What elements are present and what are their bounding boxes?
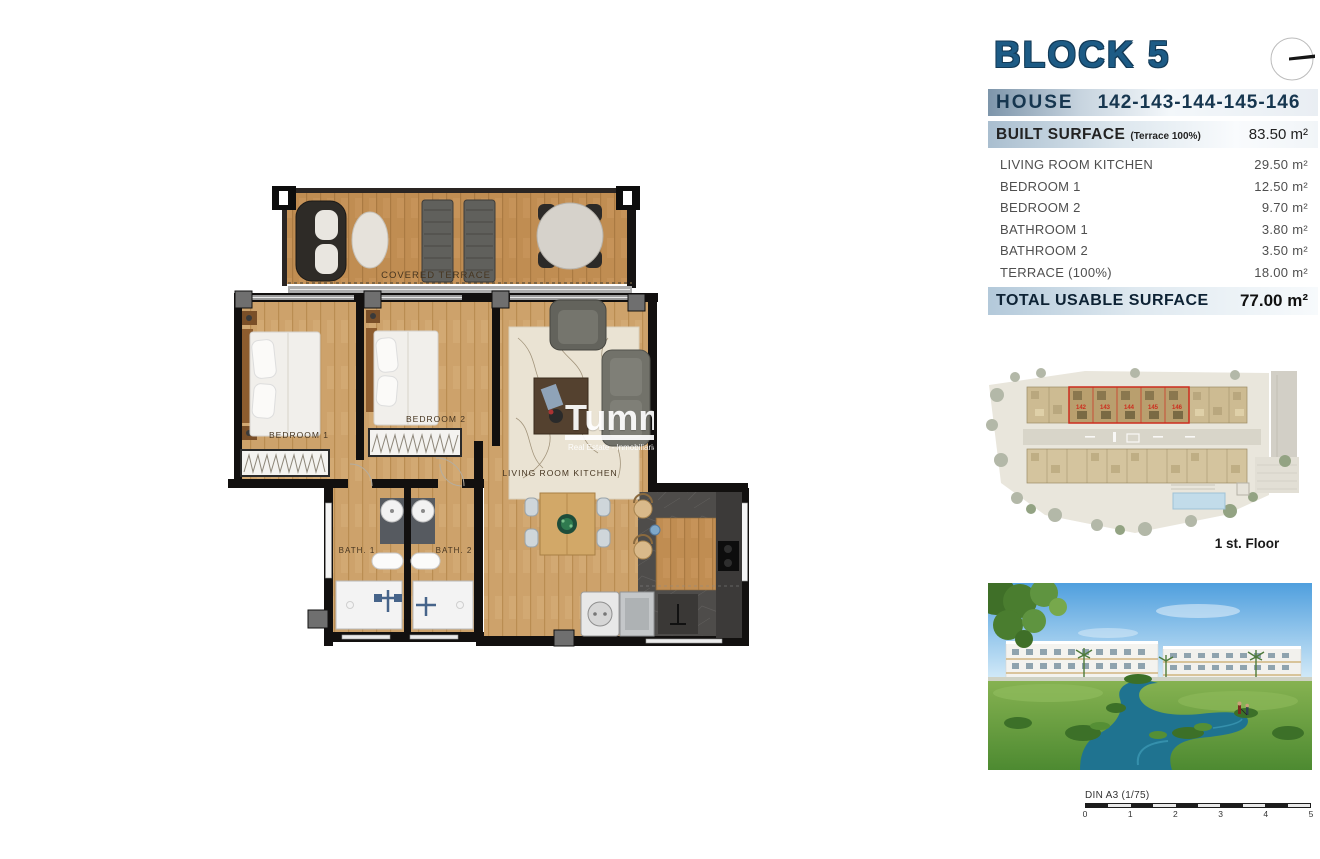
surface-row: BATHROOM 1 3.80 m² <box>988 219 1318 241</box>
surface-row-value: 18.00 m² <box>1254 265 1308 280</box>
surface-row-label: BATHROOM 2 <box>1000 243 1088 258</box>
building-row-top: 142 143 144 145 146 <box>1027 387 1247 423</box>
floor-caption: 1 st. Floor <box>1215 536 1280 551</box>
unit-number: 142 <box>1076 405 1087 411</box>
total-surface-label: TOTAL USABLE SURFACE <box>996 292 1209 310</box>
bath1-label: BATH. 1 <box>339 546 376 555</box>
surface-row-value: 9.70 m² <box>1262 200 1308 215</box>
living-label: LIVING ROOM KITCHEN <box>502 468 617 478</box>
surface-row-value: 3.50 m² <box>1262 243 1308 258</box>
built-surface-value: 83.50 m² <box>1249 126 1308 143</box>
surface-row: BEDROOM 1 12.50 m² <box>988 176 1318 198</box>
tick: 2 <box>1173 809 1178 819</box>
built-surface-band: BUILT SURFACE (Terrace 100%) 83.50 m² <box>988 121 1318 148</box>
surface-row-label: BATHROOM 1 <box>1000 222 1088 237</box>
surface-row-value: 12.50 m² <box>1254 179 1308 194</box>
tick: 1 <box>1128 809 1133 819</box>
scale-bar-segments <box>1085 803 1311 808</box>
covered-terrace-label: COVERED TERRACE <box>381 270 491 281</box>
tick: 4 <box>1263 809 1268 819</box>
terrace-dining-set <box>537 203 603 269</box>
house-label: HOUSE <box>996 92 1074 114</box>
unit-number: 144 <box>1124 405 1135 411</box>
built-surface-note: (Terrace 100%) <box>1130 131 1200 142</box>
floor-plan: COVERED TERRACE <box>228 183 768 653</box>
built-surface-label: BUILT SURFACE <box>996 126 1125 144</box>
sink-faucet <box>650 525 660 535</box>
scale-bar-label: DIN A3 (1/75) <box>1085 790 1311 801</box>
covered-terrace: COVERED TERRACE <box>272 186 640 293</box>
pool <box>1173 493 1225 509</box>
site-plan: 142 143 144 145 146 <box>985 365 1315 557</box>
house-band: HOUSE 142-143-144-145-146 <box>988 89 1318 116</box>
tick: 5 <box>1309 809 1314 819</box>
scale-bar-ticks: 0 1 2 3 4 5 <box>1085 809 1311 821</box>
bedroom2-label: BEDROOM 2 <box>406 414 466 424</box>
watermark-subtitle: Real Estate - Inmobiliaria <box>568 443 658 452</box>
total-surface-value: 77.00 m² <box>1240 291 1308 311</box>
kitchen-peninsula <box>656 518 716 590</box>
tick: 3 <box>1218 809 1223 819</box>
surface-row: BEDROOM 2 9.70 m² <box>988 197 1318 219</box>
building-row-bottom <box>1027 449 1247 483</box>
access-road <box>1023 429 1261 445</box>
surface-row-label: TERRACE (100%) <box>1000 265 1112 280</box>
scale-bar: DIN A3 (1/75) 0 1 2 3 4 5 <box>1085 790 1311 821</box>
bath2-label: BATH. 2 <box>436 546 473 555</box>
tick: 0 <box>1083 809 1088 819</box>
surface-row: LIVING ROOM KITCHEN 29.50 m² <box>988 154 1318 176</box>
unit-number: 146 <box>1172 405 1183 411</box>
compass-icon <box>1268 35 1318 85</box>
surface-table: LIVING ROOM KITCHEN 29.50 m² BEDROOM 1 1… <box>988 154 1318 283</box>
watermark: Tumme Real Estate - Inmobiliaria <box>565 397 690 452</box>
terrace-side-table <box>352 212 388 268</box>
surface-row-value: 29.50 m² <box>1254 157 1308 172</box>
plan-sheet: COVERED TERRACE <box>0 0 1320 859</box>
surface-row-label: LIVING ROOM KITCHEN <box>1000 157 1153 172</box>
surface-row: BATHROOM 2 3.50 m² <box>988 240 1318 262</box>
total-surface-band: TOTAL USABLE SURFACE 77.00 m² <box>988 287 1318 315</box>
terrace-sofa <box>296 201 346 281</box>
highlighted-units: 142 143 144 145 146 <box>1069 387 1189 423</box>
house-numbers: 142-143-144-145-146 <box>1098 92 1301 114</box>
surface-row: TERRACE (100%) 18.00 m² <box>988 262 1318 284</box>
watermark-brand: Tumme <box>565 397 690 438</box>
exterior-render-photo <box>988 583 1312 770</box>
unit-number: 143 <box>1100 405 1111 411</box>
block-title: BLOCK 5 <box>994 34 1170 76</box>
apartment-buildings <box>1006 641 1301 681</box>
unit-number: 145 <box>1148 405 1159 411</box>
surface-row-label: BEDROOM 2 <box>1000 200 1081 215</box>
pool-house <box>1237 483 1249 495</box>
surface-row-label: BEDROOM 1 <box>1000 179 1081 194</box>
surface-row-value: 3.80 m² <box>1262 222 1308 237</box>
bedroom1-label: BEDROOM 1 <box>269 430 329 440</box>
shower1 <box>336 581 402 629</box>
bedroom1: BEDROOM 1 <box>241 311 329 476</box>
